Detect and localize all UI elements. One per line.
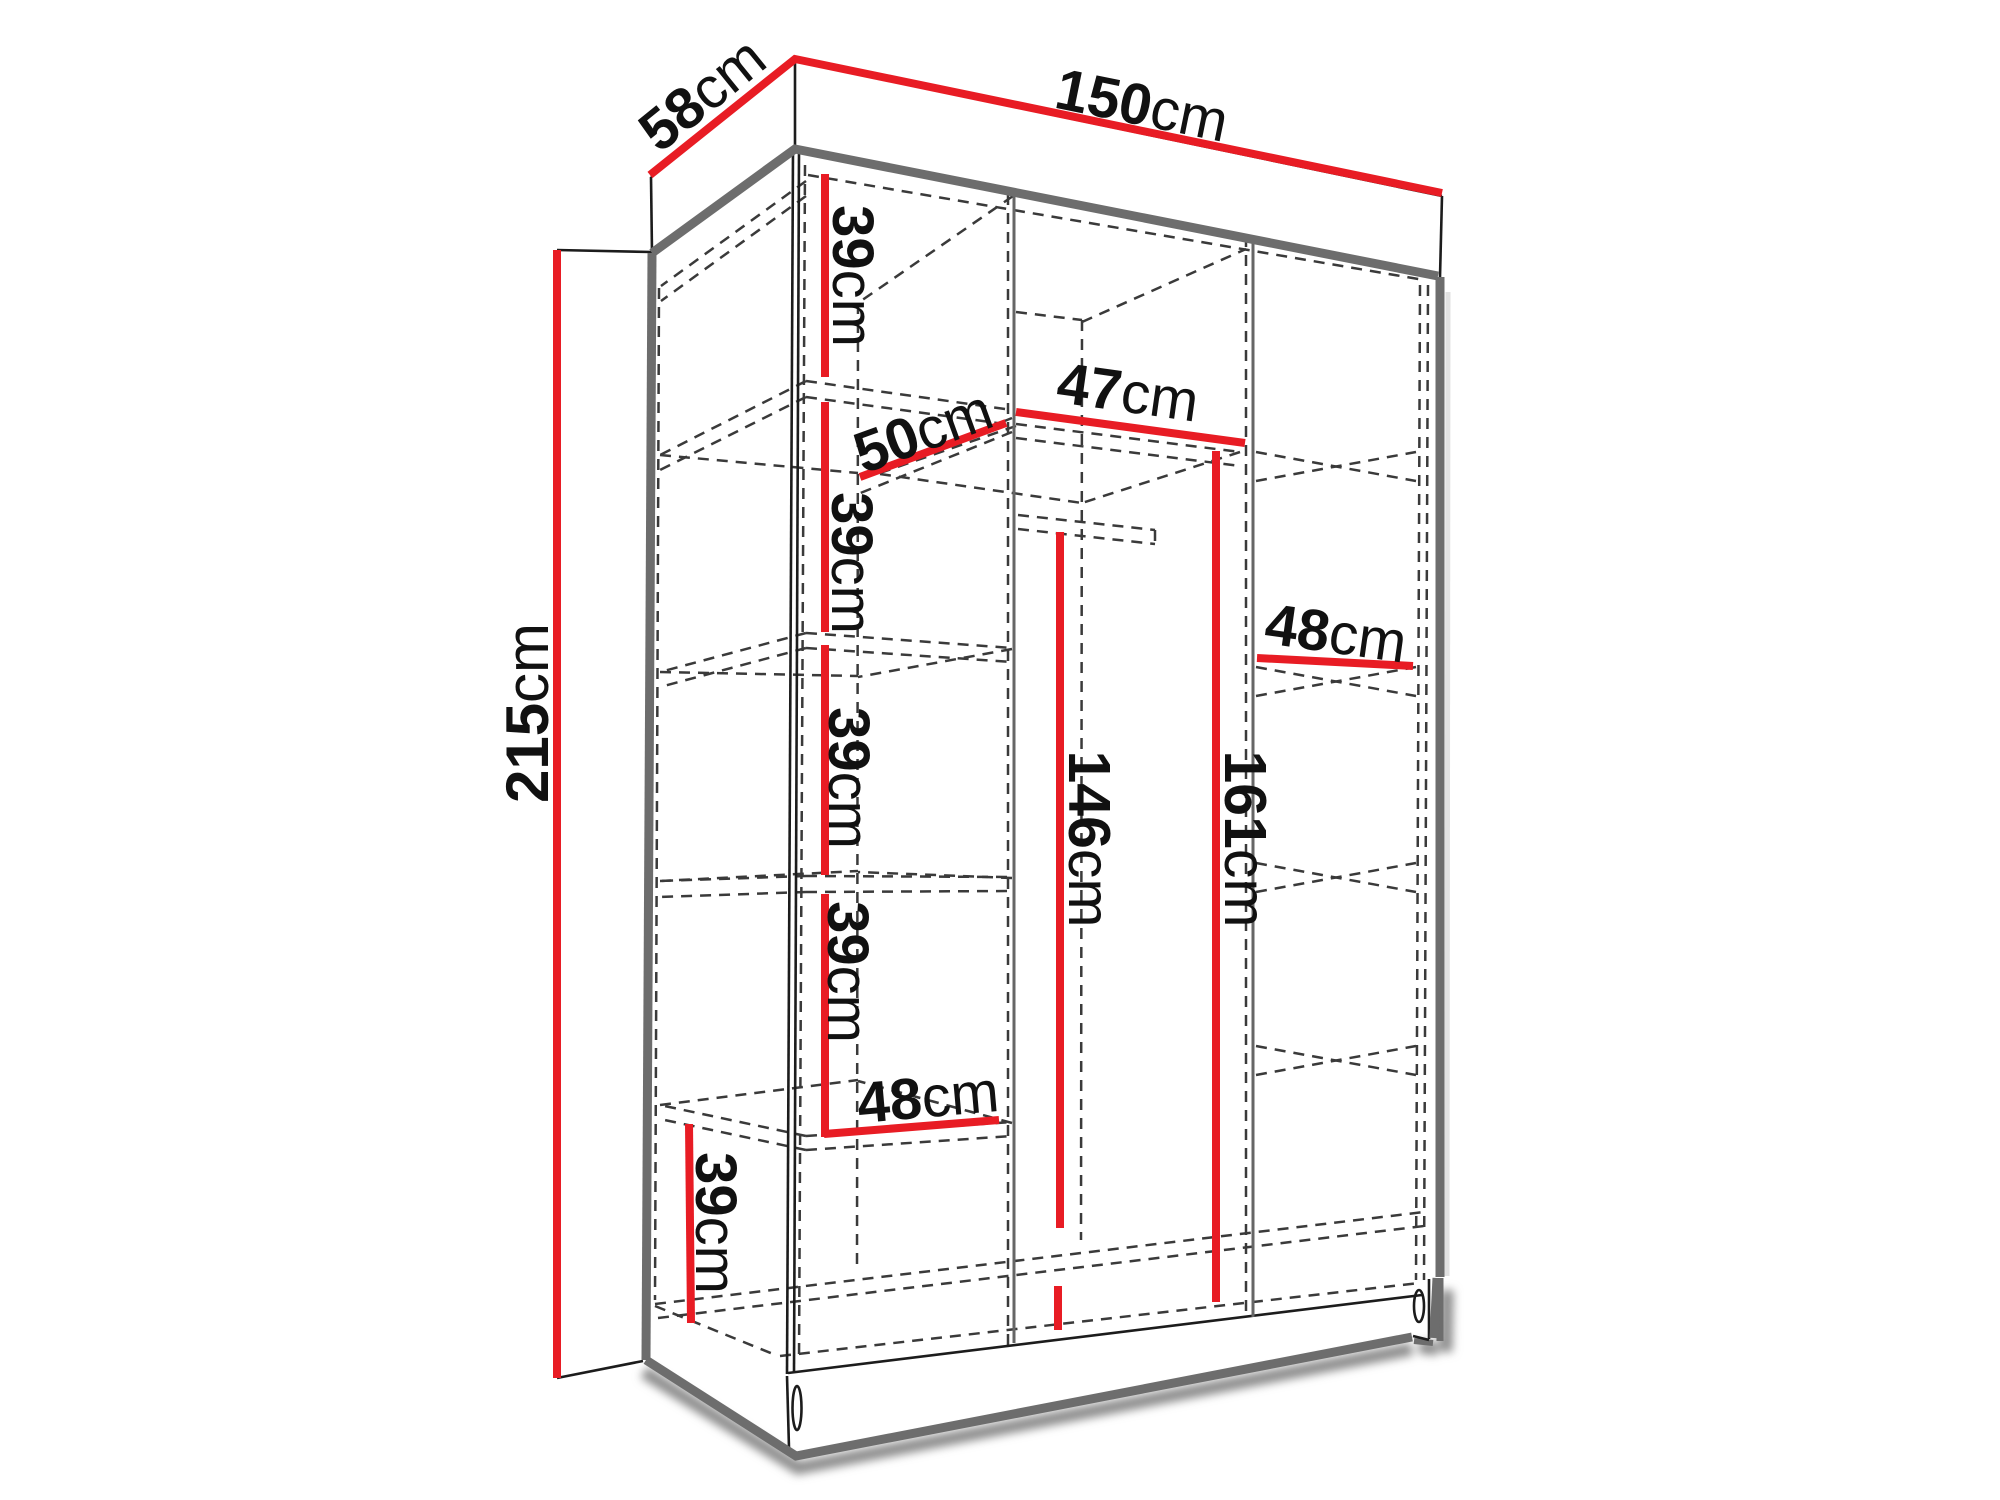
svg-text:161cm: 161cm — [1212, 750, 1278, 927]
svg-text:215cm: 215cm — [494, 623, 561, 803]
svg-text:39cm: 39cm — [819, 492, 884, 634]
svg-text:39cm: 39cm — [683, 1152, 748, 1294]
svg-text:50cm: 50cm — [845, 377, 1001, 487]
svg-text:39cm: 39cm — [815, 901, 880, 1043]
svg-text:39cm: 39cm — [820, 205, 885, 347]
svg-text:39cm: 39cm — [816, 707, 881, 849]
svg-text:150cm: 150cm — [1050, 56, 1234, 154]
svg-text:146cm: 146cm — [1056, 750, 1122, 927]
svg-text:48cm: 48cm — [855, 1059, 1002, 1136]
